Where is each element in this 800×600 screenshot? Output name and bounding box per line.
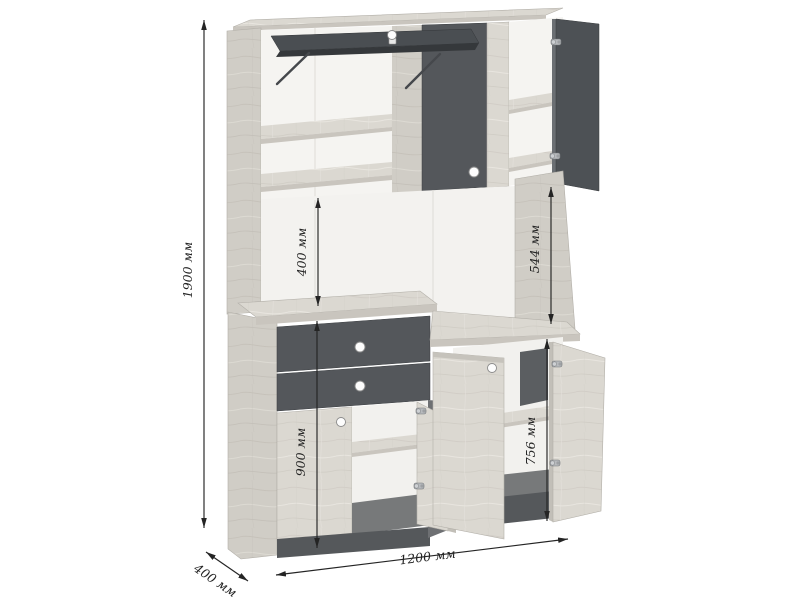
dim-upper-inner-height-label: 544 мм xyxy=(527,225,542,274)
base-cabinet xyxy=(228,291,605,559)
lower-right-door-face xyxy=(553,342,605,522)
flip-door-knob xyxy=(388,31,397,40)
dimension-depth: 400 мм xyxy=(190,552,248,600)
upper-right-door-face xyxy=(556,19,599,191)
lower-right-door-knob xyxy=(488,364,497,373)
lower-right-door-partial-open xyxy=(433,352,504,539)
dim-niche-height-label: 400 мм xyxy=(294,228,309,278)
lower-right-back-shadow xyxy=(520,348,548,406)
drawer-top-knob xyxy=(355,342,365,352)
lower-left-door-knob xyxy=(337,418,346,427)
lower-right-door-open xyxy=(549,342,605,522)
upper-middle-door-knob xyxy=(469,167,479,177)
dimension-total-height: 1900 мм xyxy=(180,20,204,528)
drawer-top xyxy=(277,316,430,372)
dim-base-height-label: 900 мм xyxy=(293,428,308,477)
hinge-icon xyxy=(416,408,426,414)
dim-lower-inner-height-label: 756 мм xyxy=(523,417,538,466)
lower-right-door-partial-face xyxy=(433,352,504,539)
upper-divider-front-panel xyxy=(487,22,509,188)
hinge-icon xyxy=(550,153,560,159)
lower-left-door xyxy=(277,407,352,541)
base-left-side-panel xyxy=(228,312,277,559)
diagram-canvas: 1900 мм 400 мм 544 мм 900 мм 756 мм 1200… xyxy=(0,0,800,600)
dim-total-height-label: 1900 мм xyxy=(180,242,195,299)
lower-right-door-edge xyxy=(549,342,553,522)
hinge-icon xyxy=(552,361,562,367)
hinge-icon xyxy=(551,39,561,45)
niche-right-support-panel xyxy=(515,171,575,335)
cabinet-dimension-drawing: 1900 мм 400 мм 544 мм 900 мм 756 мм 1200… xyxy=(0,0,800,600)
dim-depth-label: 400 мм xyxy=(190,560,239,600)
drawer-bottom-knob xyxy=(355,381,365,391)
dim-width-label: 1200 мм xyxy=(398,546,456,568)
hinge-icon xyxy=(414,483,424,489)
hutch-left-side-panel xyxy=(227,28,261,314)
hinge-icon xyxy=(550,460,560,466)
